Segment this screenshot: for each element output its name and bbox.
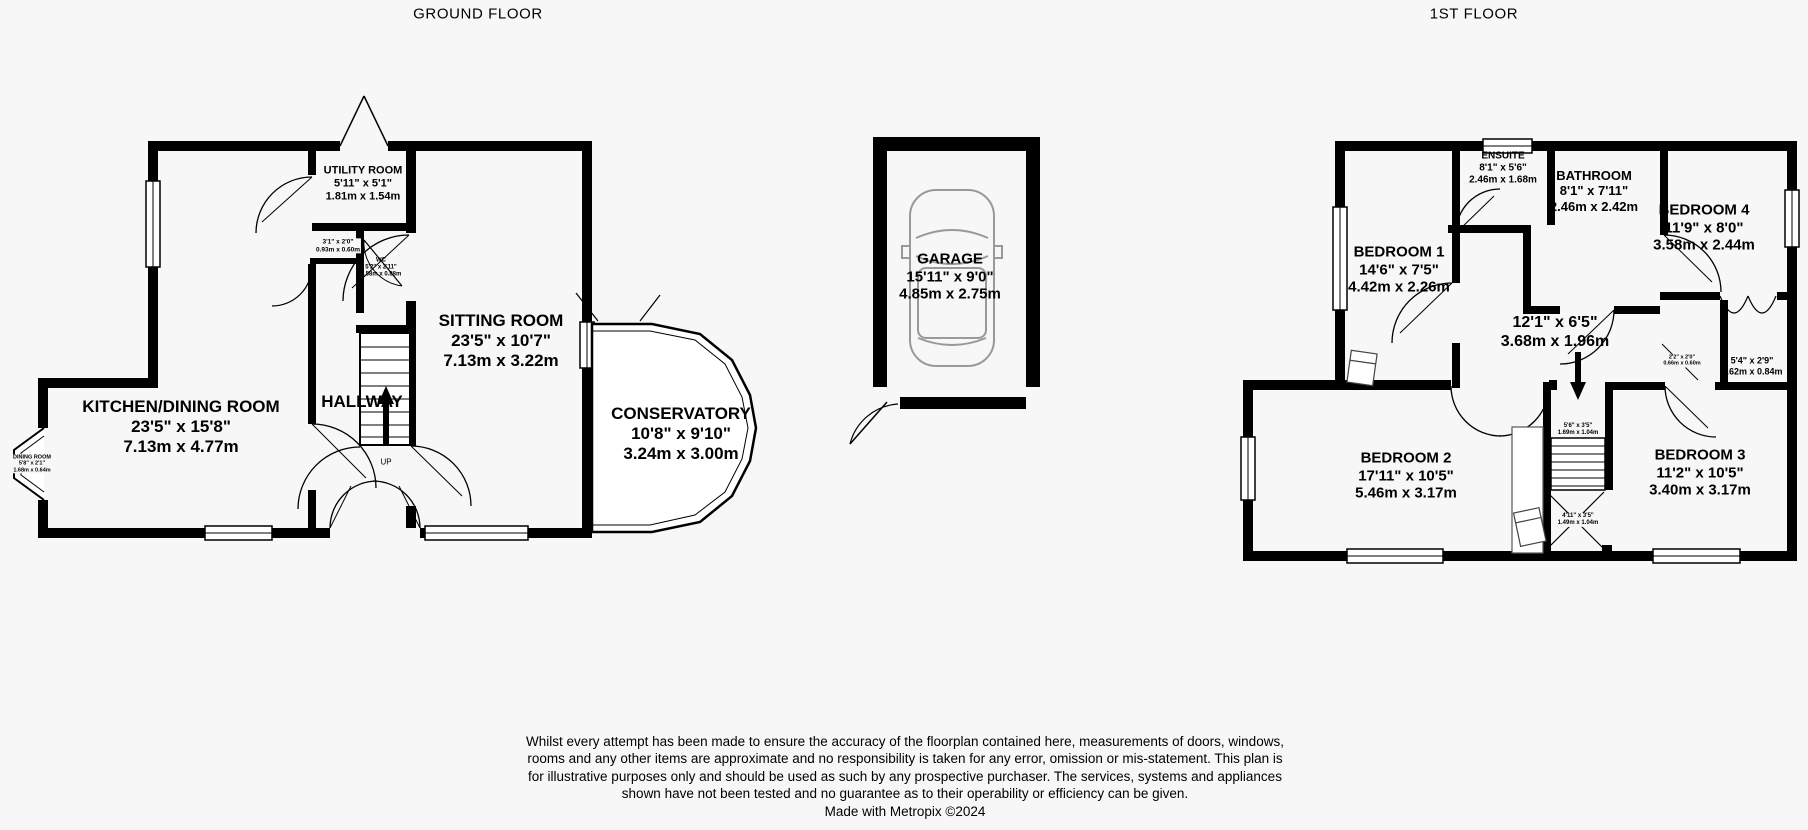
room-label-sitting: SITTING ROOM 23'5" x 10'7" 7.13m x 3.22m xyxy=(439,311,564,371)
room-label-garage: GARAGE 15'11" x 9'0" 4.85m x 2.75m xyxy=(899,250,1001,303)
footer: Whilst every attempt has been made to en… xyxy=(520,733,1290,820)
room-label-kitchen-dining: KITCHEN/DINING ROOM 23'5" x 15'8" 7.13m … xyxy=(82,397,279,457)
room-label-utility: UTILITY ROOM 5'11" x 5'1" 1.81m x 1.54m xyxy=(324,165,403,204)
room-label-bedroom3: BEDROOM 3 11'2" x 10'5" 3.40m x 3.17m xyxy=(1649,446,1751,499)
stairs-upper-label: 5'6" x 3'5" 1.69m x 1.04m xyxy=(1557,423,1600,437)
stairs-icon-ground xyxy=(360,333,410,445)
room-label-bedroom4: BEDROOM 4 11'9" x 8'0" 3.58m x 2.44m xyxy=(1653,201,1755,254)
disclaimer-text: Whilst every attempt has been made to en… xyxy=(526,734,1284,801)
floorplan-canvas: GROUND FLOOR 1ST FLOOR UTILITY ROOM 5'11… xyxy=(0,0,1808,830)
room-label-cupboard: 3'1" x 2'0" 0.93m x 0.60m xyxy=(315,238,361,253)
room-label-landing: 12'1" x 6'5" 3.68m x 1.96m xyxy=(1501,314,1610,352)
garage-door xyxy=(850,402,898,444)
credit-text: Made with Metropix ©2024 xyxy=(520,803,1290,820)
room-label-closet: 5'4" x 2'9" 1.62m x 0.84m xyxy=(1721,355,1782,376)
room-label-bedroom1: BEDROOM 1 14'6" x 7'5" 4.42m x 2.26m xyxy=(1348,243,1450,296)
closet-bay-window xyxy=(1720,296,1776,313)
room-label-ensuite: ENSUITE 8'1" x 5'6" 2.46m x 1.68m xyxy=(1469,150,1537,185)
floor-title-first: 1ST FLOOR xyxy=(1430,6,1518,23)
stairs-lower-label: 4'11" x 3'5" 1.49m x 1.04m xyxy=(1557,513,1600,527)
room-label-dining-bay: DINING ROOM 5'8" x 2'1" 1.68m x 0.64m xyxy=(12,454,52,473)
room-label-bathroom: BATHROOM 8'1" x 7'11" 2.46m x 2.42m xyxy=(1550,168,1638,214)
furniture-icon-bedroom1 xyxy=(1347,350,1377,385)
room-label-cupboard-first: 2'2" x 2'0" 0.66m x 0.60m xyxy=(1662,355,1701,368)
ground-floor-plan xyxy=(14,96,756,540)
floor-title-ground: GROUND FLOOR xyxy=(413,6,543,23)
room-label-wc: WC 5'2" x 2'11" 1.58m x 0.88m xyxy=(361,257,402,278)
room-label-bedroom2: BEDROOM 2 17'11" x 10'5" 5.46m x 3.17m xyxy=(1355,449,1457,502)
stairs-up-label: UP xyxy=(380,457,391,466)
room-label-hallway: HALLWAY xyxy=(321,392,403,412)
room-label-conservatory: CONSERVATORY 10'8" x 9'10" 3.24m x 3.00m xyxy=(611,404,751,464)
